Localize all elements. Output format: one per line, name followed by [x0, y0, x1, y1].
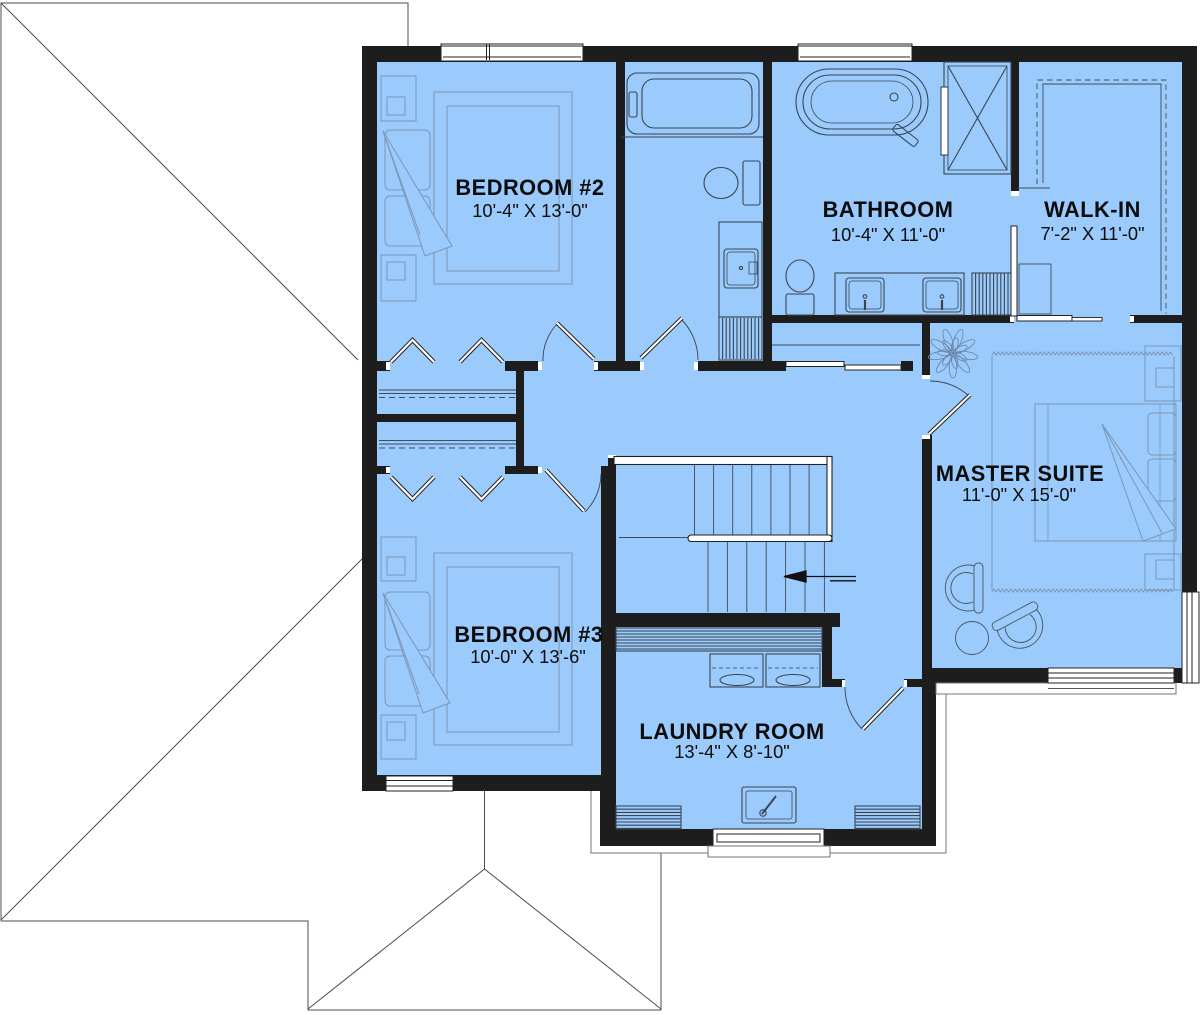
svg-text:10'-4" X 13'-0": 10'-4" X 13'-0"	[472, 200, 588, 221]
svg-text:11'-0" X 15'-0": 11'-0" X 15'-0"	[962, 484, 1076, 505]
svg-text:7'-2" X 11'-0": 7'-2" X 11'-0"	[1041, 223, 1145, 244]
svg-text:BEDROOM #3: BEDROOM #3	[454, 622, 603, 647]
svg-text:10'-0" X 13'-6": 10'-0" X 13'-6"	[470, 646, 586, 667]
svg-text:10'-4" X 11'-0": 10'-4" X 11'-0"	[831, 224, 945, 245]
svg-text:13'-4" X 8'-10": 13'-4" X 8'-10"	[674, 741, 790, 762]
svg-text:WALK-IN: WALK-IN	[1044, 197, 1141, 222]
svg-text:BEDROOM #2: BEDROOM #2	[455, 175, 604, 200]
svg-text:MASTER SUITE: MASTER SUITE	[936, 461, 1104, 486]
svg-text:BATHROOM: BATHROOM	[823, 197, 954, 222]
